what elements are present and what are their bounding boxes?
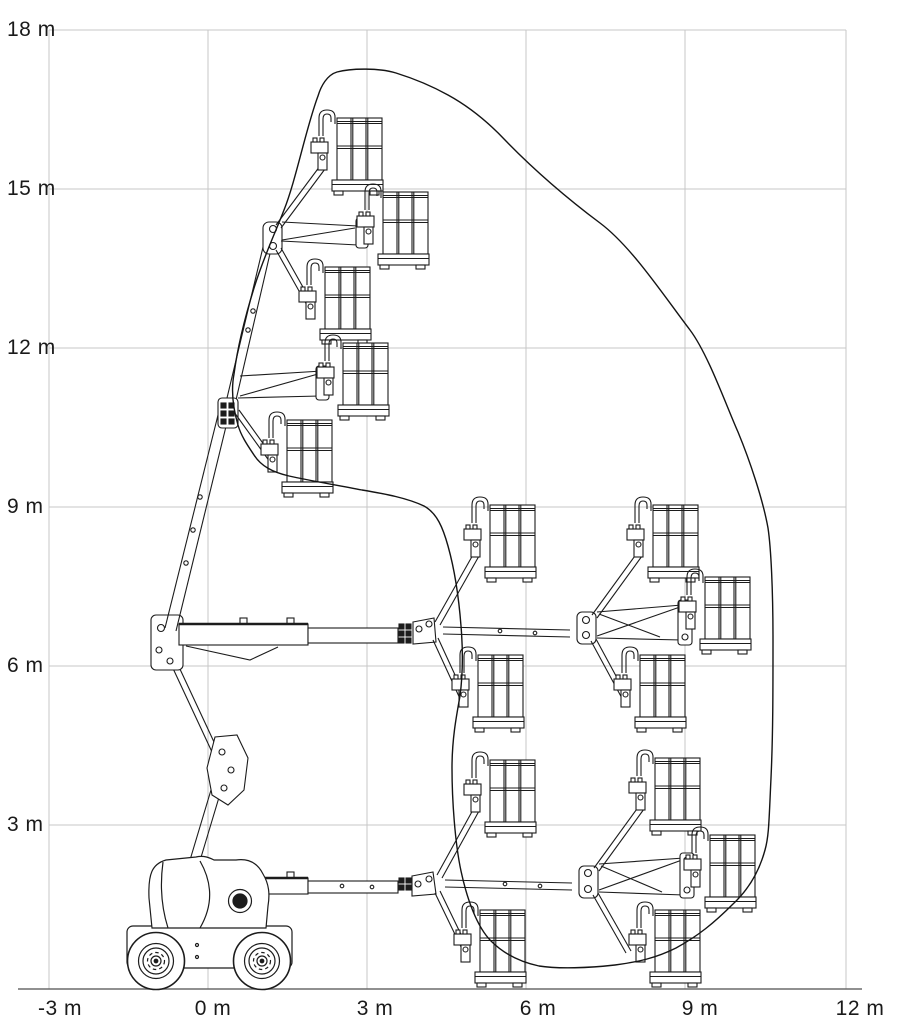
basket-mid-upper-left [464, 497, 536, 582]
y-axis-label-3m: 3 m [7, 814, 44, 836]
x-axis-label-neg3m: -3 m [20, 998, 100, 1020]
y-axis-label-18m: 18 m [7, 19, 56, 41]
x-axis-label-3m: 3 m [335, 998, 415, 1020]
basket-top-1 [311, 110, 383, 195]
riser-linkage [151, 615, 248, 864]
boom-lift-machine [127, 856, 292, 989]
x-axis-label-12m: 12 m [820, 998, 900, 1020]
rear-wheel [128, 933, 185, 990]
y-axis-label-6m: 6 m [7, 655, 44, 677]
y-axis-label-12m: 12 m [7, 337, 56, 359]
envelope-diagram-canvas [0, 0, 900, 1031]
basket-low-lower-left [454, 902, 526, 987]
basket-mid-lower-right [614, 647, 686, 732]
basket-low-lower-right [629, 902, 701, 987]
working-envelope-diagram: 18 m 15 m 12 m 9 m 6 m 3 m -3 m 0 m 3 m … [0, 0, 900, 1031]
front-wheel [234, 933, 291, 990]
basket-top-2 [357, 184, 429, 269]
basket-low-upper-left [464, 752, 536, 837]
x-axis-label-0m: 0 m [173, 998, 253, 1020]
basket-top-3 [299, 259, 371, 344]
raised-boom [165, 243, 272, 631]
x-axis-label-9m: 9 m [660, 998, 740, 1020]
basket-low-upper-right [629, 750, 701, 835]
turret-body [149, 856, 269, 928]
x-axis-label-6m: 6 m [498, 998, 578, 1020]
basket-upper-5 [261, 412, 333, 497]
boom-structures [151, 166, 694, 953]
y-axis-label-15m: 15 m [7, 178, 56, 200]
basket-mid-upper-right [627, 497, 699, 582]
basket-low-far-right [684, 827, 756, 912]
y-axis-label-9m: 9 m [7, 496, 44, 518]
